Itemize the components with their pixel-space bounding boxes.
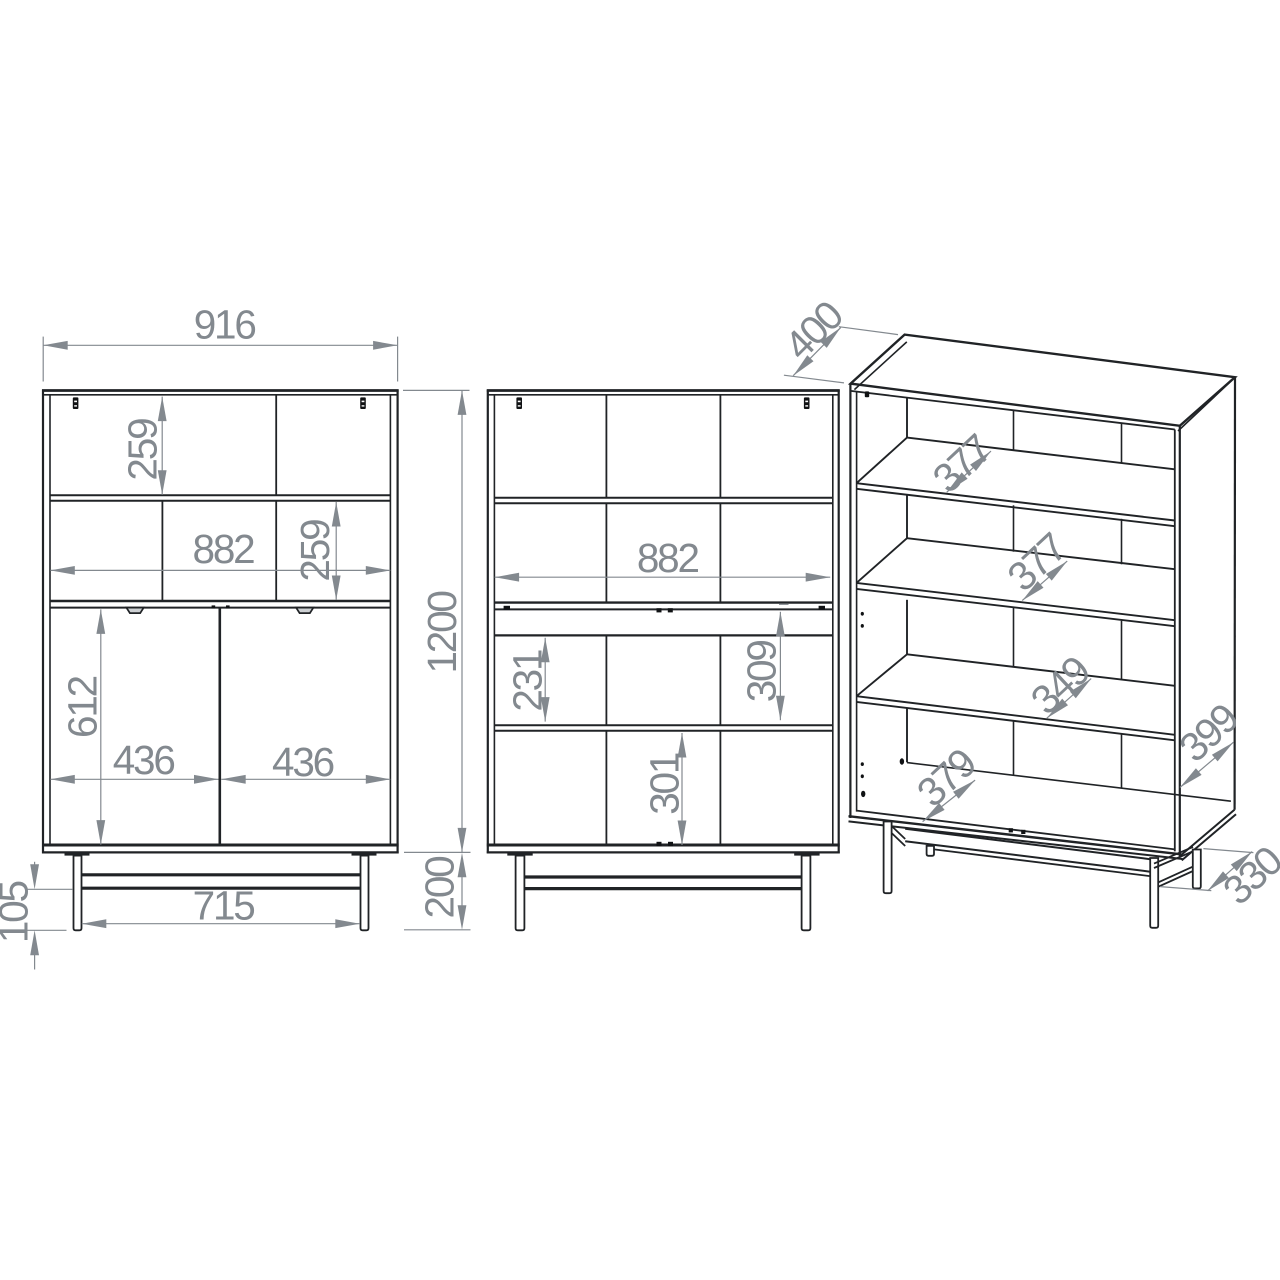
- svg-text:715: 715: [193, 882, 255, 928]
- svg-text:882: 882: [637, 535, 699, 581]
- svg-text:309: 309: [739, 641, 785, 703]
- svg-text:436: 436: [113, 737, 175, 783]
- svg-text:916: 916: [194, 302, 256, 348]
- svg-text:1200: 1200: [419, 592, 465, 674]
- svg-text:259: 259: [292, 520, 338, 582]
- svg-text:200: 200: [417, 857, 463, 919]
- svg-text:301: 301: [642, 753, 688, 815]
- svg-text:436: 436: [272, 739, 334, 785]
- svg-text:612: 612: [60, 676, 106, 738]
- svg-text:105: 105: [0, 882, 37, 944]
- svg-text:259: 259: [120, 419, 166, 481]
- svg-text:231: 231: [505, 650, 551, 712]
- svg-text:882: 882: [193, 526, 255, 572]
